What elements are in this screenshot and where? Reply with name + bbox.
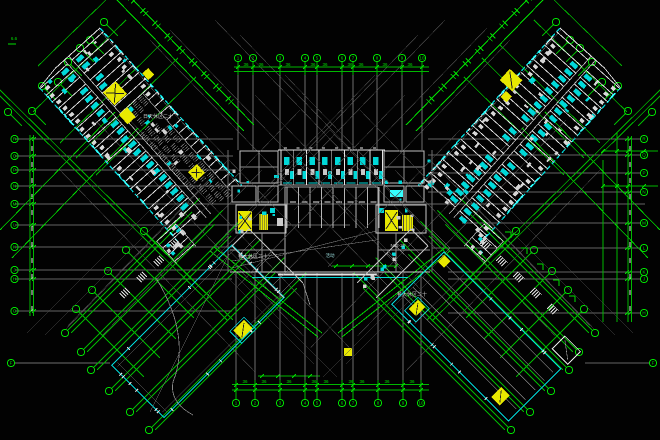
svg-text:36: 36 [347,62,353,67]
svg-text:M: M [642,221,646,226]
svg-text:Q: Q [642,153,646,158]
svg-text:F: F [652,361,655,366]
svg-text:36: 36 [384,379,390,384]
svg-text:活动: 活动 [326,252,335,259]
svg-text:10: 10 [418,401,424,406]
svg-text:36: 36 [323,379,329,384]
svg-text:G: G [13,309,17,314]
svg-text:36: 36 [242,379,248,384]
svg-text:36: 36 [286,379,292,384]
svg-text:N: N [13,184,16,189]
svg-text:M: M [13,202,17,207]
svg-text:P: P [13,168,16,173]
svg-text:10: 10 [419,56,425,61]
svg-text:36: 36 [348,379,354,384]
svg-text:K: K [13,245,16,250]
svg-text:36: 36 [382,62,388,67]
svg-text:日天休区二十: 日天休区二十 [143,113,173,120]
svg-text:36: 36 [285,62,291,67]
svg-text:6.6: 6.6 [11,36,18,41]
svg-text:36: 36 [261,379,267,384]
svg-text:J: J [13,268,15,273]
svg-text:36: 36 [243,62,249,67]
svg-text:H: H [13,277,16,282]
svg-text:36: 36 [322,62,328,67]
svg-text:J: J [643,277,645,282]
svg-text:F: F [10,361,13,366]
svg-text:36: 36 [359,379,365,384]
svg-text:Q: Q [13,154,17,159]
svg-text:36: 36 [258,62,264,67]
svg-text:K: K [642,270,645,275]
svg-text:36: 36 [407,62,413,67]
svg-text:H: H [642,311,645,316]
svg-text:N12-2F: N12-2F [390,243,405,248]
svg-text:P: P [642,171,645,176]
svg-text:36: 36 [310,62,316,67]
svg-text:N: N [642,190,645,195]
svg-text:36: 36 [358,62,364,67]
svg-text:36: 36 [311,379,317,384]
svg-text:36: 36 [409,379,415,384]
